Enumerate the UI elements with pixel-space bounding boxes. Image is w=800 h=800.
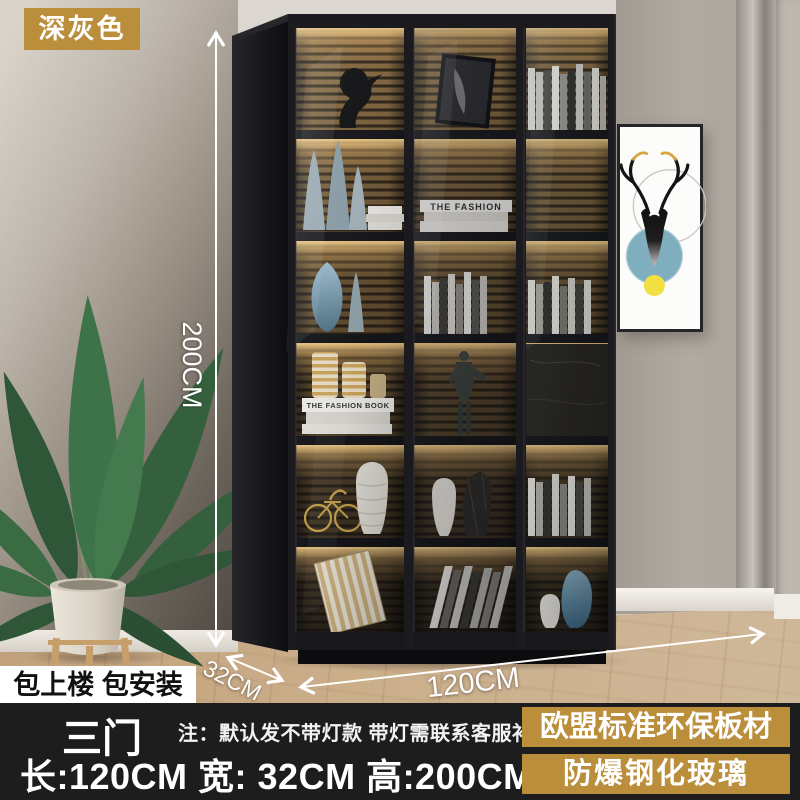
size-line: 长:120CM 宽: 32CM 高:200CM [20, 748, 534, 800]
lighting-note: 注：默认发不带灯款 带灯需联系客服补差价 [178, 717, 574, 746]
potted-plant [0, 272, 246, 672]
product-image: THE FASHION [0, 0, 800, 800]
info-bar: 三门 注：默认发不带灯款 带灯需联系客服补差价 长:120CM 宽: 32CM … [0, 703, 800, 800]
right-wall-panel [776, 0, 800, 624]
wall-corner-trim [736, 0, 776, 620]
cabinet-side-panel [232, 16, 288, 652]
cabinet-plinth [298, 650, 606, 664]
baseboard-right-far [774, 594, 800, 619]
feature-badge-glass: 防爆钢化玻璃 [522, 754, 790, 794]
color-badge: 深灰色 [24, 8, 140, 50]
feature-badge-board: 欧盟标准环保板材 [522, 707, 790, 747]
height-dimension-label: 200CM [173, 299, 207, 431]
baseboard-right [616, 588, 774, 611]
deer-wall-art [617, 124, 703, 332]
bookcase: THE FASHION [226, 6, 624, 672]
deer-artwork-icon [620, 127, 706, 335]
service-badge: 包上楼 包安装 [0, 666, 196, 704]
plant-leaves [0, 294, 246, 672]
glass-doors [286, 28, 608, 632]
